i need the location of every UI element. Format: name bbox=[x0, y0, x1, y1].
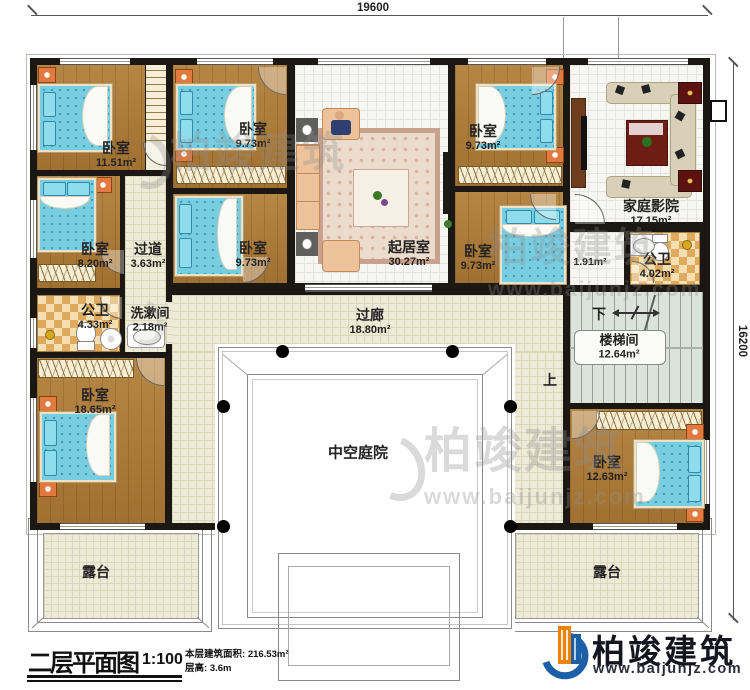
room-name: 楼梯间 bbox=[599, 334, 638, 349]
room-area: 9.73m² bbox=[236, 138, 271, 150]
column bbox=[504, 520, 517, 533]
person-body bbox=[331, 120, 351, 135]
label-gallery: 过廊 18.80m² bbox=[350, 308, 391, 336]
side-table-lamp bbox=[296, 118, 318, 142]
room-name: 公卫 bbox=[81, 303, 109, 319]
floor-area-label: 本层建筑面积: bbox=[185, 649, 245, 660]
sink bbox=[100, 328, 122, 350]
nightstand bbox=[39, 481, 57, 497]
label-stairwell: 楼梯间 12.64m² bbox=[599, 334, 640, 361]
window bbox=[593, 523, 677, 530]
side-table-lamp bbox=[296, 232, 318, 256]
bed bbox=[175, 196, 243, 276]
lamp bbox=[45, 330, 55, 340]
window bbox=[468, 58, 546, 65]
floor-area-line: 本层建筑面积: 216.53m² bbox=[185, 648, 288, 662]
room-area: 3.63m² bbox=[131, 258, 166, 270]
dimension-line-top bbox=[31, 15, 708, 16]
room-name: 卧室 bbox=[239, 241, 267, 257]
room-name: 卧室 bbox=[239, 122, 267, 138]
window bbox=[30, 398, 37, 482]
terrace-tiles bbox=[43, 533, 199, 619]
pillow bbox=[43, 92, 56, 117]
pillow bbox=[179, 204, 192, 234]
stair-arrow-line bbox=[618, 312, 654, 314]
room-name: 卧室 bbox=[102, 141, 130, 157]
plan-scale: 1:100 bbox=[142, 651, 183, 669]
wardrobe bbox=[38, 359, 134, 378]
rug-sheen bbox=[629, 123, 663, 135]
dim-witness-line bbox=[618, 17, 619, 58]
window bbox=[30, 200, 37, 258]
label-bedroom-tm: 卧室 9.73m² bbox=[236, 122, 271, 150]
window bbox=[60, 58, 130, 65]
room-area: 18.80m² bbox=[350, 324, 391, 336]
label-hallway: 过道 3.63m² bbox=[131, 242, 166, 270]
dimension-right: 16200 bbox=[736, 325, 748, 357]
room-name: 起居室 bbox=[388, 240, 430, 256]
pillow bbox=[43, 182, 66, 196]
pillow bbox=[688, 475, 701, 502]
room-area: 30.27m² bbox=[389, 256, 430, 268]
floor-height-label: 层高: bbox=[185, 663, 207, 674]
room-name: 过道 bbox=[134, 242, 162, 258]
nightstand bbox=[175, 69, 193, 85]
room-area: 2.18m² bbox=[133, 321, 168, 333]
room-area: 9.73m² bbox=[466, 140, 501, 152]
window bbox=[703, 440, 710, 504]
room-area: 9.73m² bbox=[236, 257, 271, 269]
room-name: 卧室 bbox=[593, 455, 621, 471]
brand-logo bbox=[538, 622, 590, 689]
theater-rug bbox=[626, 120, 668, 166]
carpet-flower bbox=[381, 199, 388, 206]
room-name: 露台 bbox=[82, 565, 110, 581]
bed bbox=[634, 440, 704, 508]
label-bedroom-mm: 卧室 9.73m² bbox=[236, 241, 271, 269]
room-area: 4.02m² bbox=[640, 268, 675, 280]
plan-title: 二层平面图 bbox=[28, 643, 138, 678]
room-name: 家庭影院 bbox=[623, 199, 679, 215]
label-bedroom-br: 卧室 12.63m² bbox=[587, 455, 628, 483]
room-name: 公卫 bbox=[643, 252, 671, 268]
room-name: 洗漱间 bbox=[130, 307, 169, 322]
window bbox=[30, 318, 37, 348]
label-courtyard: 中空庭院 bbox=[328, 446, 388, 463]
wardrobe bbox=[458, 166, 562, 184]
label-terrace-left: 露台 bbox=[82, 565, 110, 581]
room-area: 4.33m² bbox=[78, 319, 113, 331]
plant bbox=[444, 220, 452, 228]
pillow bbox=[44, 420, 57, 446]
label-bedroom-bl: 卧室 18.65m² bbox=[75, 388, 116, 416]
dim-tick bbox=[27, 5, 37, 15]
stair-up-label: 上 bbox=[543, 370, 557, 390]
walkway-left bbox=[172, 352, 218, 523]
window bbox=[318, 58, 430, 65]
room-name: 露台 bbox=[593, 565, 621, 581]
title-underline bbox=[27, 680, 182, 682]
pillow bbox=[67, 182, 90, 196]
dim-witness-line bbox=[563, 17, 564, 58]
label-lobby: 1.91m² bbox=[573, 257, 606, 269]
room-name: 卧室 bbox=[469, 124, 497, 140]
sofa bbox=[296, 144, 320, 230]
wardrobe bbox=[176, 166, 286, 184]
label-terrace-right: 露台 bbox=[593, 565, 621, 581]
window bbox=[588, 58, 688, 65]
room-area: 11.51m² bbox=[96, 157, 136, 169]
brand-logo-icon bbox=[538, 622, 590, 684]
nightstand bbox=[39, 396, 57, 412]
floor-height-value: 3.6m bbox=[210, 663, 232, 674]
window bbox=[197, 58, 273, 65]
wall-flue-box bbox=[710, 100, 727, 122]
label-bedroom-mr: 卧室 9.73m² bbox=[461, 244, 496, 272]
pillow bbox=[180, 119, 193, 143]
room-area: 12.64m² bbox=[599, 348, 640, 360]
dimension-line-right bbox=[733, 62, 734, 620]
person-head bbox=[335, 111, 344, 120]
bed-sheet bbox=[86, 414, 110, 476]
dimension-top: 19600 bbox=[357, 2, 389, 14]
cushion bbox=[621, 179, 630, 188]
column bbox=[276, 345, 289, 358]
column bbox=[217, 400, 230, 413]
column bbox=[504, 400, 517, 413]
armchair bbox=[322, 240, 360, 272]
tv bbox=[443, 152, 450, 214]
room-name: 过廊 bbox=[356, 308, 384, 324]
label-theater: 家庭影院 17.15m² bbox=[623, 199, 679, 227]
room-area: 9.73m² bbox=[461, 260, 496, 272]
room-name: 中空庭院 bbox=[328, 446, 388, 463]
toilet-tank bbox=[77, 341, 95, 351]
label-bedroom-tr: 卧室 9.73m² bbox=[466, 124, 501, 152]
pillow bbox=[540, 91, 553, 115]
label-bath-right: 公卫 4.02m² bbox=[640, 252, 675, 280]
pillow bbox=[180, 91, 193, 115]
nightstand bbox=[94, 177, 112, 193]
bed-sheet bbox=[502, 224, 560, 237]
nightstand bbox=[686, 506, 704, 522]
brand-website: www.baijunjz.com bbox=[593, 661, 742, 677]
floor-height-line: 层高: 3.6m bbox=[185, 662, 231, 676]
pillow bbox=[540, 119, 553, 143]
pillow bbox=[506, 210, 532, 224]
pillow bbox=[179, 238, 192, 268]
armchair bbox=[322, 108, 360, 140]
bed-sheet bbox=[217, 198, 237, 270]
stair-arrow-head bbox=[653, 309, 660, 317]
tv bbox=[581, 116, 587, 170]
room-name: 卧室 bbox=[81, 388, 109, 404]
lamp bbox=[682, 240, 692, 250]
window bbox=[30, 85, 37, 150]
terrace-left bbox=[28, 518, 212, 632]
dim-tick bbox=[702, 5, 712, 15]
bed-sheet bbox=[636, 442, 660, 502]
column bbox=[217, 520, 230, 533]
bed bbox=[40, 412, 116, 482]
room-area: 1.91m² bbox=[573, 257, 606, 269]
plant bbox=[642, 137, 652, 147]
label-bedroom-tl: 卧室 11.51m² bbox=[96, 141, 136, 169]
pillow bbox=[688, 446, 701, 473]
closet-strip bbox=[146, 65, 166, 141]
floor-area-value: 216.53m² bbox=[248, 649, 289, 660]
bed-sheet bbox=[82, 86, 108, 146]
label-bedroom-ml: 卧室 8.20m² bbox=[78, 242, 113, 270]
bed-sheet bbox=[40, 196, 90, 209]
title-underline bbox=[27, 675, 182, 678]
column bbox=[446, 345, 459, 358]
stair-down-label: 下 bbox=[592, 304, 606, 324]
end-table bbox=[678, 170, 702, 192]
room-area: 12.63m² bbox=[587, 471, 628, 483]
stair-arrow-head bbox=[612, 309, 619, 317]
room-area: 17.15m² bbox=[631, 215, 672, 227]
room-area: 8.20m² bbox=[78, 258, 113, 270]
living-threshold bbox=[305, 284, 432, 292]
nightstand bbox=[686, 424, 704, 440]
floor-plan-canvas: 19600 16200 bbox=[0, 0, 750, 690]
pillow bbox=[43, 121, 56, 146]
bed bbox=[500, 206, 566, 284]
pillow bbox=[44, 450, 57, 476]
nightstand bbox=[38, 67, 56, 83]
label-washroom: 洗漱间 2.18m² bbox=[130, 307, 169, 334]
window bbox=[60, 523, 145, 530]
porch-outline-inner bbox=[288, 566, 450, 666]
room-name: 卧室 bbox=[464, 244, 492, 260]
carpet-flower bbox=[373, 191, 382, 200]
room-area: 18.65m² bbox=[75, 404, 116, 416]
label-bath-left: 公卫 4.33m² bbox=[78, 303, 113, 331]
label-living: 起居室 30.27m² bbox=[388, 240, 430, 268]
end-table bbox=[678, 82, 702, 104]
room-name: 卧室 bbox=[81, 242, 109, 258]
